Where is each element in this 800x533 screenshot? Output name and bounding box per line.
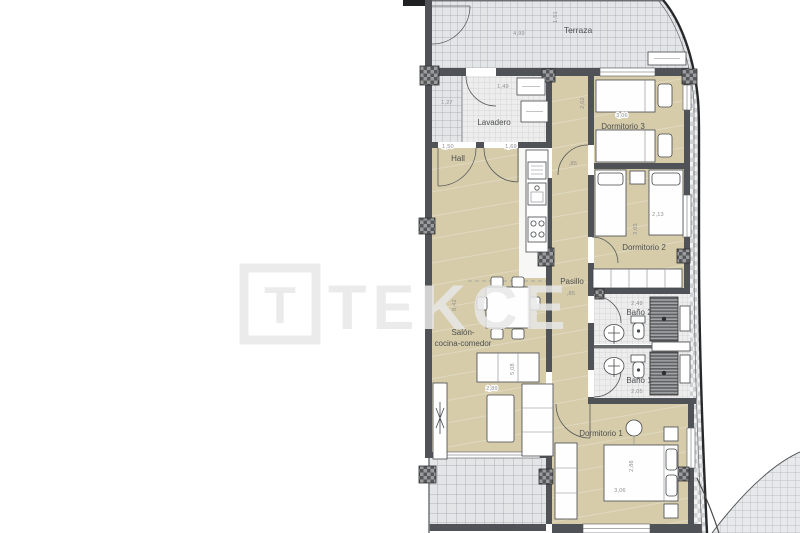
dim-bano1-width: 2,05 — [631, 389, 643, 395]
dormitorio3-label: Dormitorio 3 — [601, 122, 645, 131]
bed-dorm3-a — [596, 80, 672, 112]
column — [419, 466, 436, 483]
toilet-bano1 — [631, 355, 645, 378]
coffee-table — [487, 395, 514, 442]
window-dorm1-east — [687, 428, 695, 468]
dryer — [521, 101, 548, 122]
lavadero-label: Lavadero — [477, 118, 511, 127]
watermark-brand-text: TEKCE — [328, 273, 572, 343]
dim-terraza-depth: 1,51 — [553, 11, 559, 23]
fridge — [528, 162, 546, 179]
pasillo-floor — [552, 76, 588, 404]
dim-dorm2-depth: 3,03 — [633, 223, 639, 235]
bano2-label: Baño 2 — [626, 308, 652, 317]
window-dorm3-east — [683, 85, 691, 110]
floor-plan-page: Terraza Lavadero Hall Dormitorio 3 Dormi… — [0, 0, 800, 533]
nightstand-dorm2 — [630, 171, 645, 184]
nightstand-dorm1-a — [664, 427, 678, 441]
bano1-label: Baño 1 — [626, 376, 652, 385]
bed-dorm2-right — [649, 170, 683, 235]
sofa-main — [477, 353, 539, 382]
column — [677, 249, 690, 263]
floor-plan-drawing: Terraza Lavadero Hall Dormitorio 3 Dormi… — [0, 0, 800, 533]
sofa-side — [522, 384, 553, 456]
dormitorio2-label: Dormitorio 2 — [622, 243, 666, 252]
hall-label: Hall — [451, 154, 465, 163]
kitchen-sink — [528, 183, 546, 205]
shelf-bano2 — [680, 306, 690, 331]
dim-salon-width: 2,89 — [486, 386, 498, 392]
shower-bano1 — [650, 352, 678, 395]
column — [682, 69, 697, 84]
corner-terrace-patch — [712, 452, 800, 533]
bed-dorm3-b — [596, 130, 672, 162]
dim-hall-door-left: 1,50 — [442, 144, 454, 150]
dim-dorm1-width: 3,06 — [614, 488, 626, 494]
dim-dorm3-depth: 2,02 — [580, 97, 586, 109]
watermark: T TEKCE — [244, 268, 572, 343]
terraza-top-label: Terraza — [564, 25, 593, 35]
dim-dorm3-width: 3,06 — [616, 113, 628, 119]
dim-pasillo-top: ,85 — [569, 161, 577, 167]
column — [420, 66, 439, 85]
wardrobe-dorm2 — [593, 269, 682, 288]
shower-bano2 — [650, 297, 678, 341]
watermark-logo-letter: T — [264, 277, 296, 335]
dim-bano2-width: 2,49 — [631, 301, 643, 307]
terrace-planter — [648, 52, 686, 65]
bath-divider-shelf — [652, 342, 690, 351]
washer — [517, 78, 545, 95]
column — [539, 469, 553, 484]
column — [419, 218, 435, 234]
stove — [528, 217, 546, 242]
dim-terraza-width: 4,99 — [513, 31, 525, 37]
dim-terraza-left: 1,27 — [441, 100, 453, 106]
window-dorm2-east — [683, 195, 691, 237]
dim-dorm2-width: 2,13 — [652, 212, 664, 218]
terrace-side-strip-floor — [432, 76, 462, 142]
dormitorio1-label: Dormitorio 1 — [579, 429, 623, 438]
dim-lavadero-width: 1,49 — [497, 84, 509, 90]
terrace-bottom-floor — [429, 458, 546, 524]
window-dorm1-south — [583, 524, 650, 533]
wardrobe-dorm1 — [555, 443, 577, 519]
nightstand-dorm1-b — [664, 504, 678, 518]
dim-dorm1-depth: 2,86 — [629, 460, 635, 472]
shelf-bano1 — [680, 355, 690, 383]
window-dorm3-north — [600, 68, 655, 76]
toilet-bano2 — [631, 316, 645, 339]
dim-salon-inner: 5,08 — [510, 363, 516, 375]
tv-unit — [433, 383, 447, 459]
bed-dorm2-left — [595, 170, 626, 236]
dim-hall-door-right: 1,69 — [505, 144, 517, 150]
terraza-bottom-label: Terraza — [489, 523, 516, 532]
